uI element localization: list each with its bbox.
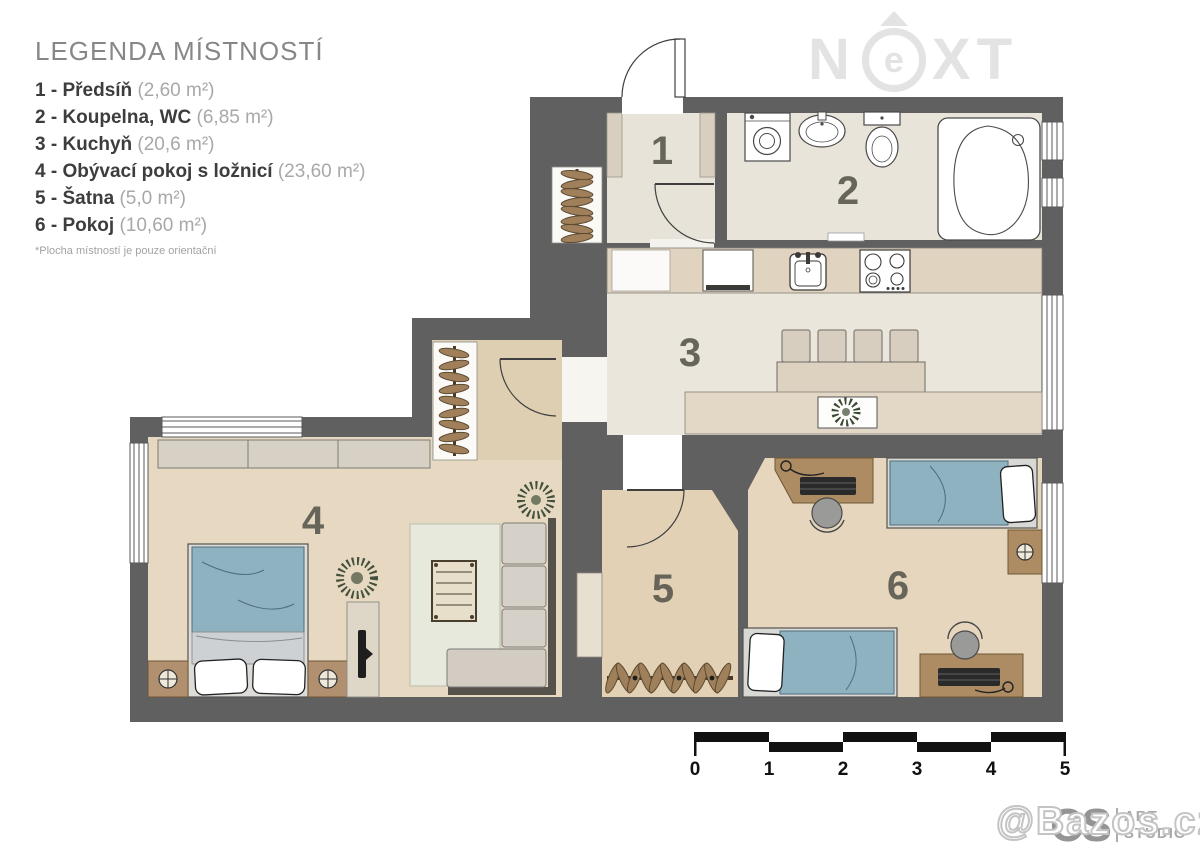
room-label-4: 4: [302, 499, 325, 543]
window-bath-2: [1042, 178, 1063, 207]
scale-0: 0: [690, 759, 701, 780]
coffee-table: [432, 561, 476, 621]
single-bed-top: [887, 458, 1037, 528]
toilet: [864, 112, 900, 167]
coat-rack: [552, 167, 602, 244]
scale-2: 2: [838, 759, 849, 780]
washing-machine: [745, 113, 790, 161]
entrance-door: [622, 39, 685, 97]
scale-3: 3: [912, 759, 923, 780]
scale-4: 4: [986, 759, 997, 780]
single-bed-bottom: [743, 628, 897, 697]
room-5-niche: [577, 573, 602, 657]
bath-mat: [828, 233, 864, 241]
office-chair-2: [951, 631, 979, 659]
room-label-6: 6: [887, 564, 909, 608]
window-bath-1: [1042, 122, 1063, 160]
window-room4-top: [162, 417, 302, 437]
scale-5: 5: [1060, 759, 1071, 780]
nightstand-room6: [1008, 530, 1042, 574]
stove: [860, 250, 910, 292]
bazos-watermark: @Bazos.cz: [996, 800, 1200, 844]
room-label-2: 2: [837, 169, 859, 213]
window-room4-left: [130, 443, 148, 563]
room-label-5: 5: [652, 567, 674, 611]
wardrobe-rack: [433, 342, 477, 460]
scale-1: 1: [764, 759, 775, 780]
nightstand-right: [308, 661, 348, 697]
sideboard: [158, 440, 430, 468]
bathtub: [938, 118, 1040, 240]
floor-plan: 1 2 3 4 5 6 0 1 2 3 4 5: [0, 0, 1200, 848]
room-label-1: 1: [651, 129, 673, 173]
window-kitchen: [1042, 295, 1063, 430]
kitchen-table: [685, 392, 1042, 434]
double-bed: [188, 544, 308, 697]
kitchen-sink: [790, 252, 826, 290]
scale-bar: 0 1 2 3 4 5: [690, 732, 1071, 780]
tv-panel: [347, 602, 379, 697]
floorplan-page: LEGENDA MÍSTNOSTÍ 1 - Předsíň (2,60 m²) …: [0, 0, 1200, 848]
nightstand-left: [148, 661, 188, 697]
window-room6: [1042, 483, 1063, 583]
room-label-3: 3: [679, 331, 701, 375]
office-chair: [812, 498, 842, 528]
